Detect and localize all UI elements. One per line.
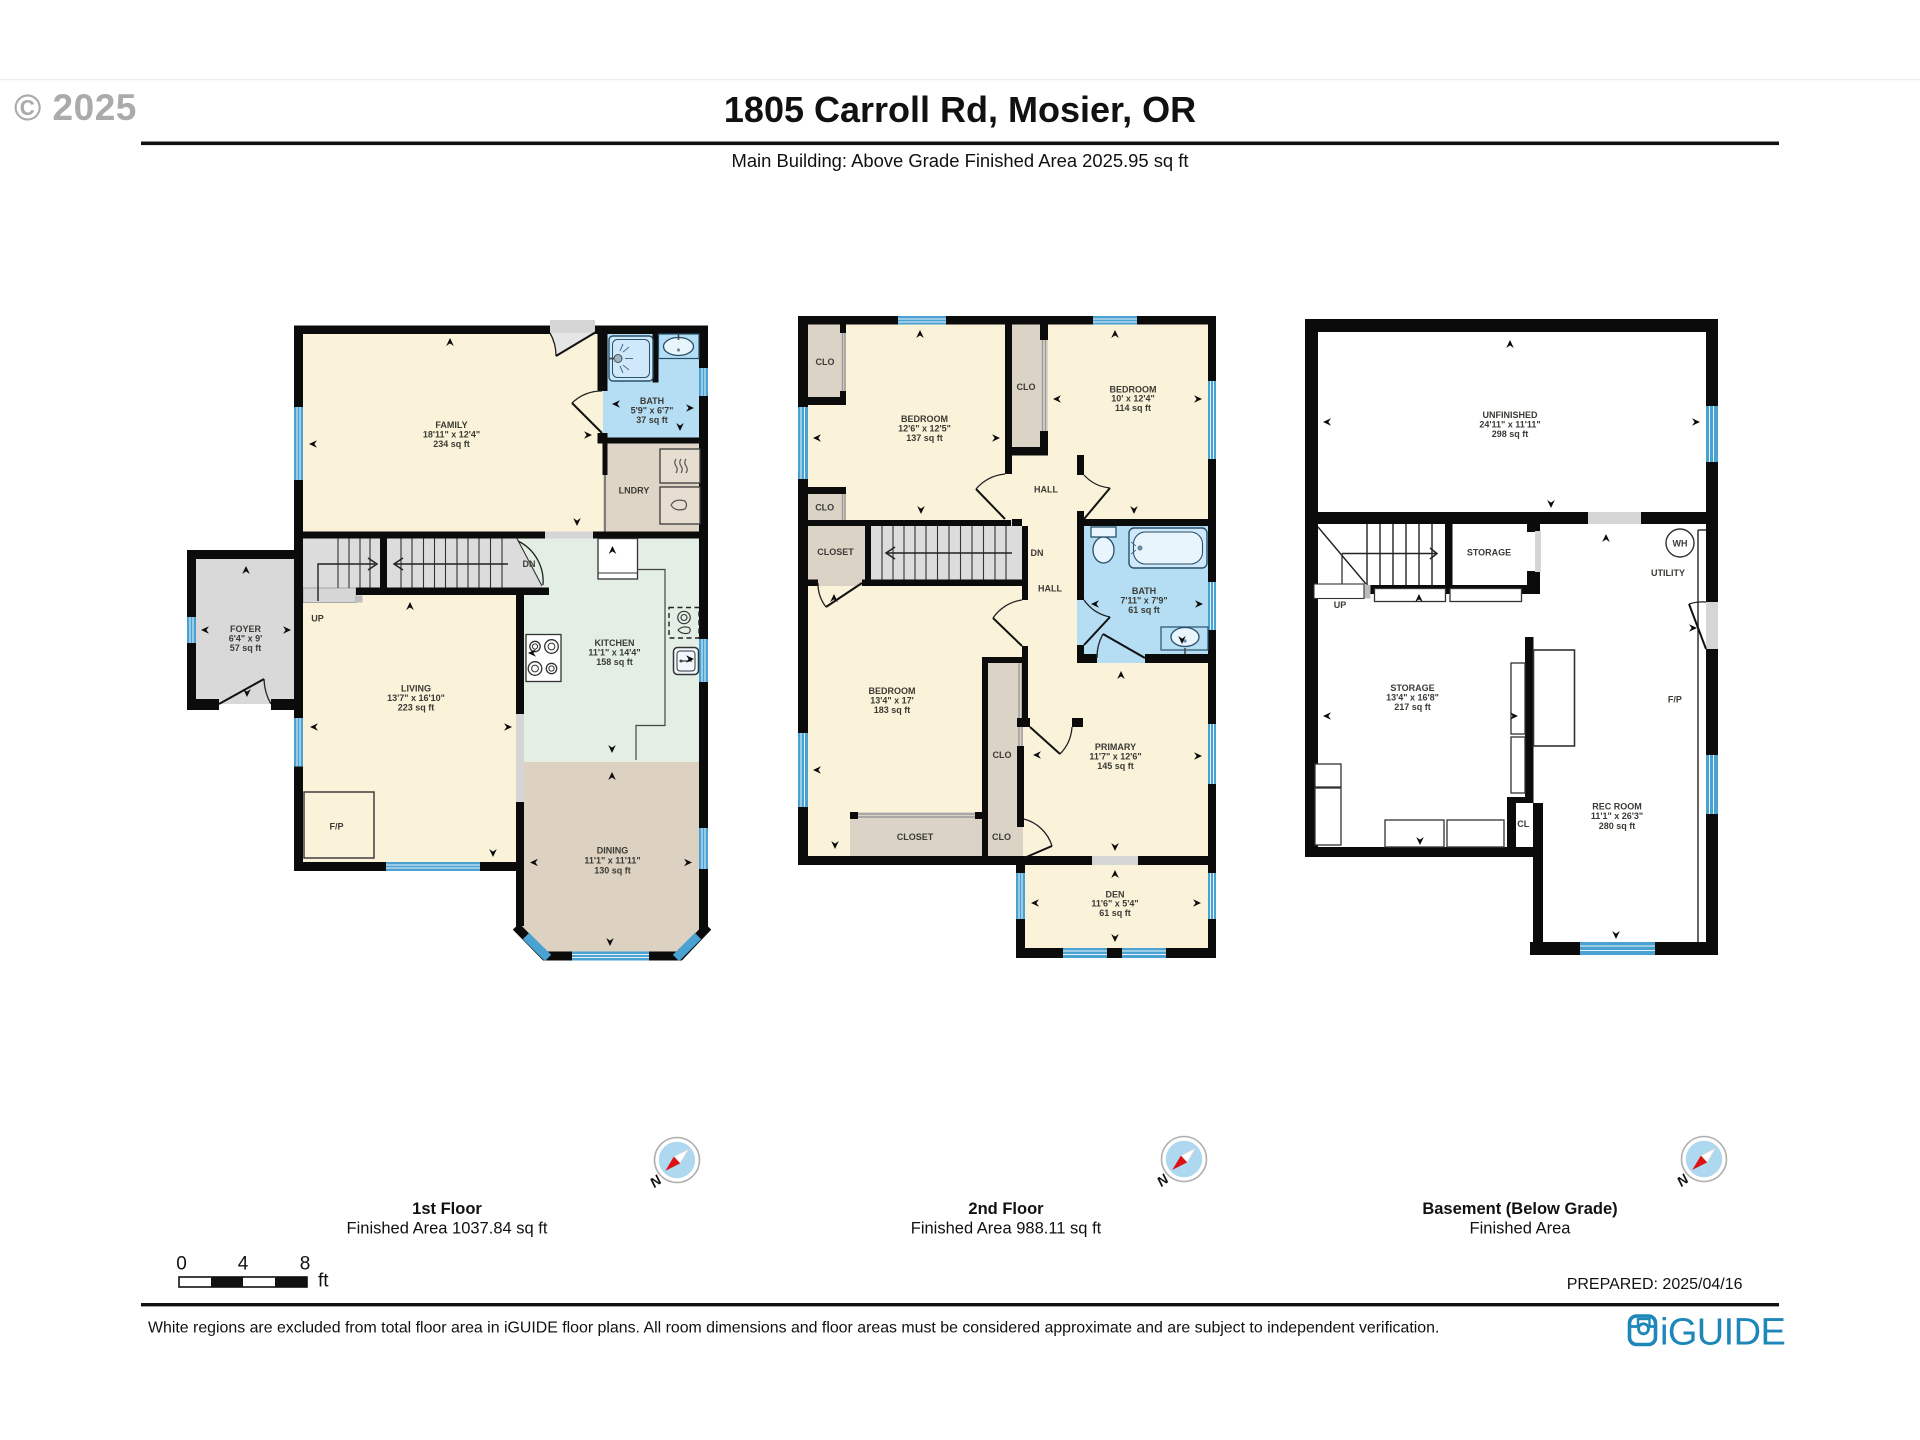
svg-text:Basement (Below Grade): Basement (Below Grade) (1422, 1200, 1617, 1218)
svg-text:CLO: CLO (815, 503, 834, 513)
svg-text:LNDRY: LNDRY (619, 486, 650, 496)
svg-text:DN: DN (1031, 548, 1044, 558)
svg-text:BEDROOM13'4" x 17'183 sq ft: BEDROOM13'4" x 17'183 sq ft (869, 686, 916, 715)
svg-text:UTILITY: UTILITY (1651, 568, 1685, 578)
svg-text:F/P: F/P (1668, 694, 1682, 704)
svg-text:© 2025: © 2025 (14, 87, 137, 128)
svg-text:WH: WH (1673, 539, 1688, 549)
svg-text:UP: UP (1334, 600, 1347, 610)
svg-text:STORAGE13'4" x 16'8"217 sq ft: STORAGE13'4" x 16'8"217 sq ft (1386, 683, 1439, 712)
svg-text:STORAGE: STORAGE (1467, 547, 1511, 557)
svg-text:F/P: F/P (329, 822, 343, 832)
svg-text:Finished Area: Finished Area (1470, 1220, 1572, 1238)
svg-text:Main Building: Above Grade Fin: Main Building: Above Grade Finished Area… (732, 150, 1189, 171)
svg-text:REC ROOM11'1" x 26'3"280 sq ft: REC ROOM11'1" x 26'3"280 sq ft (1591, 802, 1643, 831)
svg-text:Finished Area 988.11 sq ft: Finished Area 988.11 sq ft (911, 1220, 1102, 1238)
svg-text:Finished Area 1037.84 sq ft: Finished Area 1037.84 sq ft (347, 1220, 548, 1238)
svg-text:CLO: CLO (816, 357, 835, 367)
svg-text:HALL: HALL (1038, 584, 1062, 594)
svg-text:CLO: CLO (1017, 382, 1036, 392)
svg-text:UNFINISHED24'11" x 11'11"298 s: UNFINISHED24'11" x 11'11"298 sq ft (1479, 410, 1540, 439)
svg-text:CLO: CLO (992, 832, 1011, 842)
svg-text:CLO: CLO (993, 750, 1012, 760)
svg-text:FOYER6'4" x 9'57 sq ft: FOYER6'4" x 9'57 sq ft (229, 624, 263, 653)
svg-text:HALL: HALL (1034, 485, 1058, 495)
svg-text:4: 4 (238, 1254, 249, 1275)
svg-text:DN: DN (523, 559, 536, 569)
svg-text:ft: ft (318, 1271, 329, 1292)
svg-text:2nd Floor: 2nd Floor (968, 1200, 1044, 1218)
svg-text:CLOSET: CLOSET (897, 832, 934, 842)
svg-text:White regions are excluded fro: White regions are excluded from total fl… (148, 1320, 1439, 1337)
svg-text:CL: CL (1517, 819, 1529, 829)
svg-text:0: 0 (176, 1254, 187, 1275)
svg-text:iGUIDE: iGUIDE (1660, 1312, 1785, 1354)
svg-text:1st Floor: 1st Floor (412, 1200, 482, 1218)
svg-text:UP: UP (311, 614, 324, 624)
svg-text:1805 Carroll Rd, Mosier, OR: 1805 Carroll Rd, Mosier, OR (724, 89, 1196, 130)
svg-text:8: 8 (300, 1254, 311, 1275)
svg-text:BEDROOM10' x 12'4"114 sq ft: BEDROOM10' x 12'4"114 sq ft (1110, 384, 1157, 413)
svg-text:PREPARED: 2025/04/16: PREPARED: 2025/04/16 (1567, 1276, 1743, 1293)
svg-text:CLOSET: CLOSET (817, 547, 854, 557)
